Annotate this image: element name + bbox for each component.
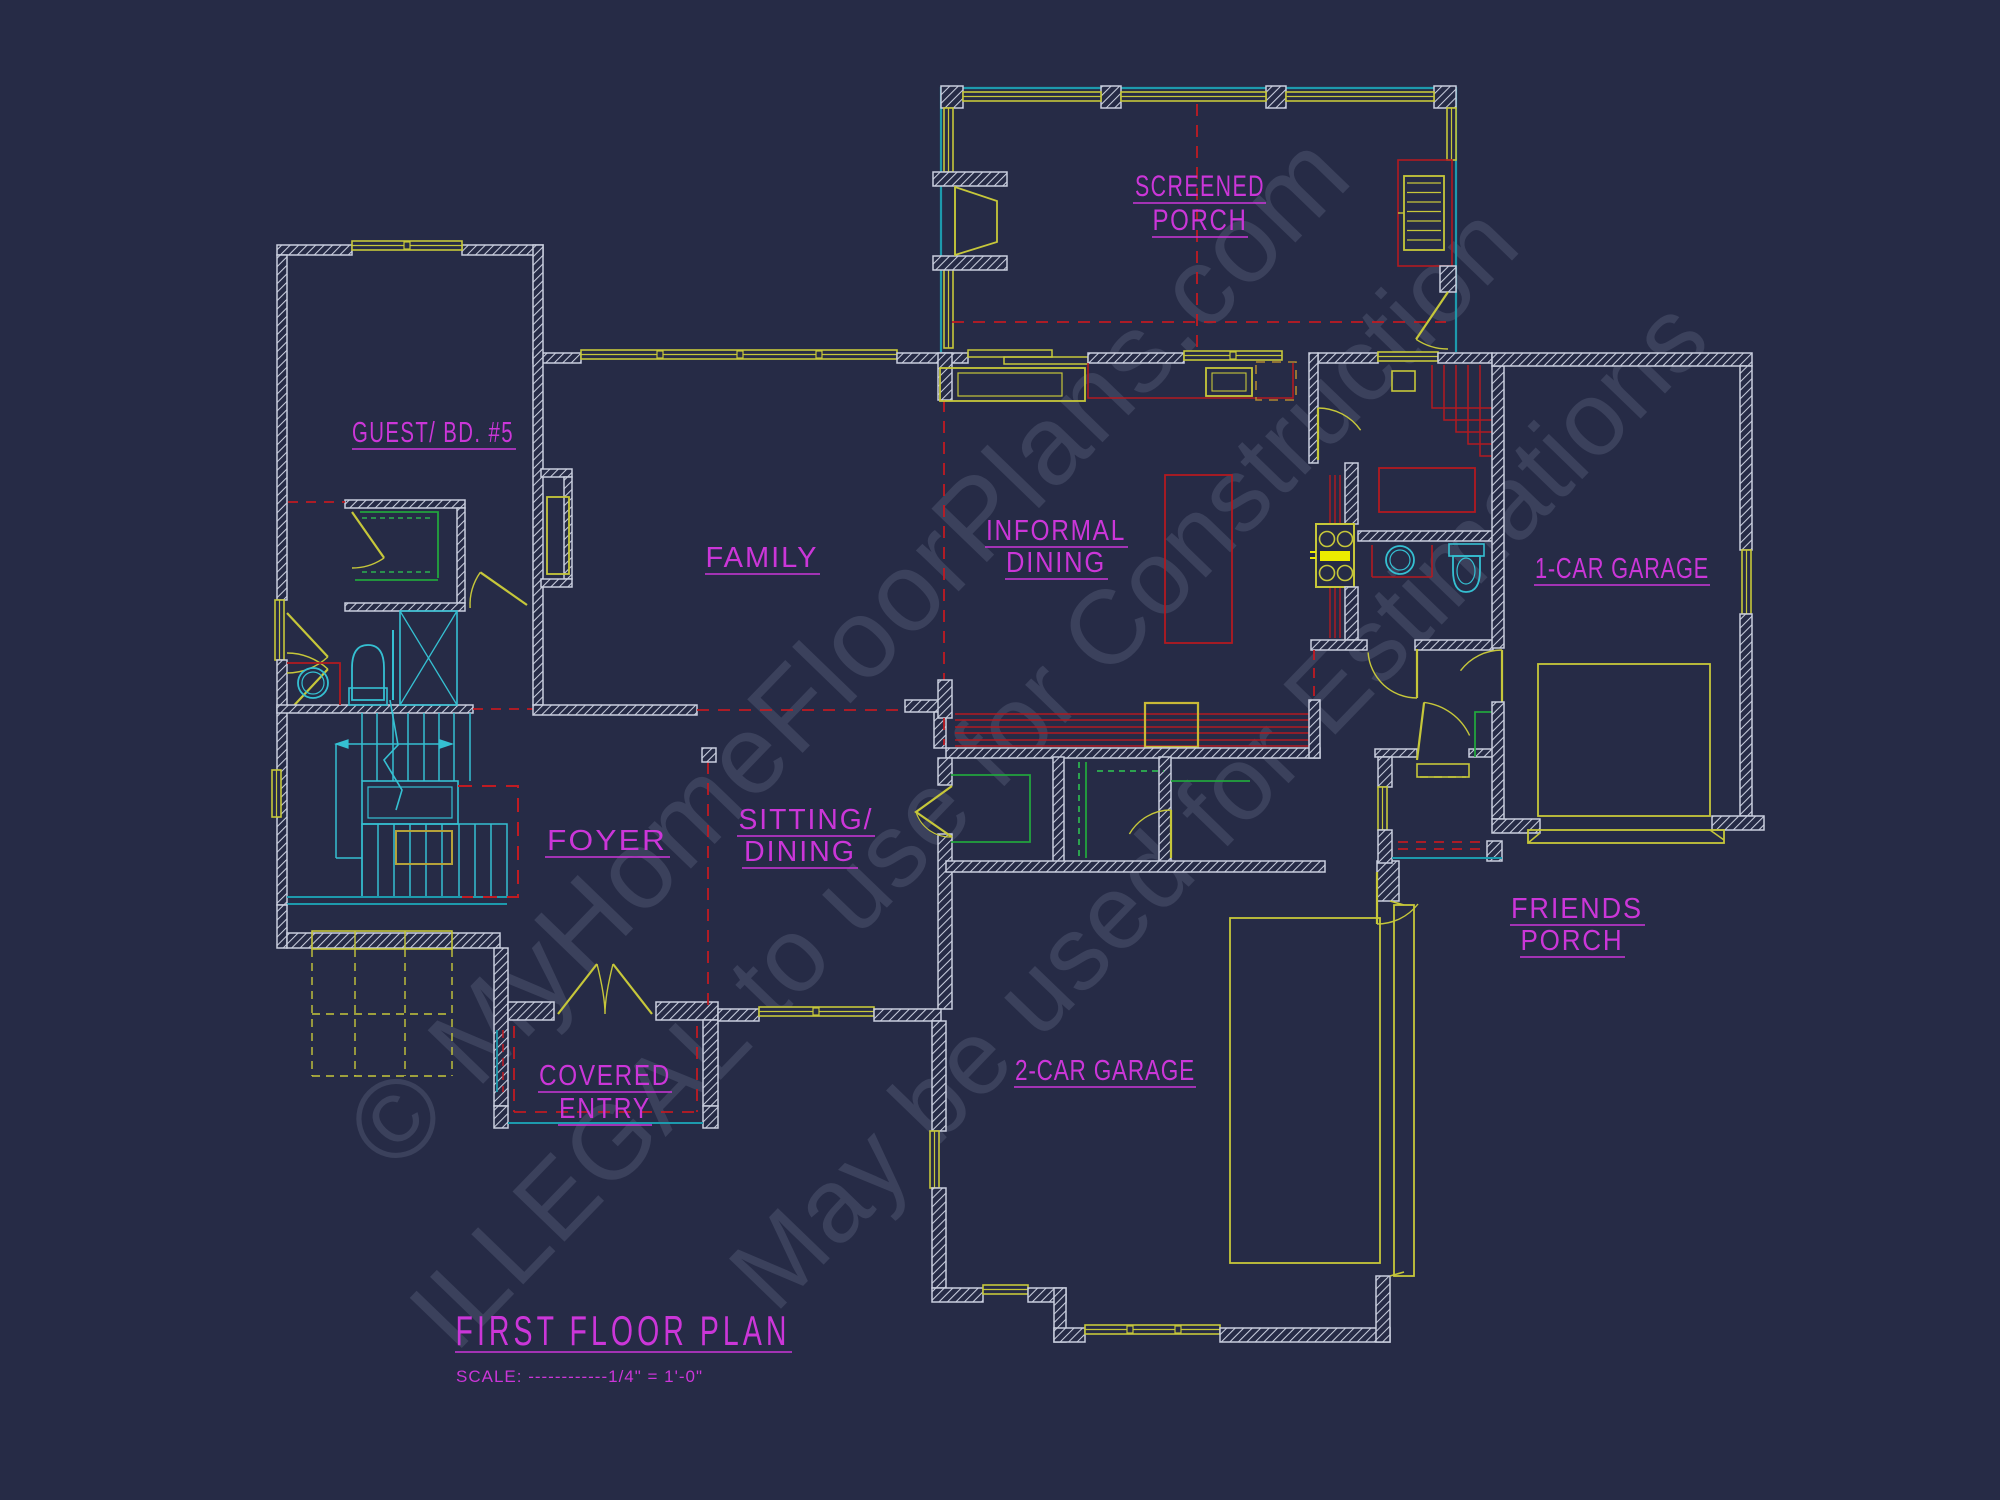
svg-text:PORCH: PORCH: [1521, 925, 1624, 957]
svg-text:SCALE: ------------1/4" = 1'-0: SCALE: ------------1/4" = 1'-0": [456, 1367, 703, 1386]
svg-text:SCREENED: SCREENED: [1135, 170, 1265, 203]
svg-text:FIRST FLOOR PLAN: FIRST FLOOR PLAN: [456, 1307, 791, 1354]
svg-text:DINING: DINING: [1006, 547, 1106, 579]
svg-text:FOYER: FOYER: [547, 825, 667, 857]
svg-text:COVERED: COVERED: [539, 1060, 671, 1092]
svg-text:INFORMAL: INFORMAL: [986, 515, 1126, 547]
svg-text:PORCH: PORCH: [1153, 204, 1248, 237]
svg-text:ENTRY: ENTRY: [559, 1093, 651, 1125]
svg-text:FAMILY: FAMILY: [706, 542, 819, 574]
svg-text:GUEST/ BD. #5: GUEST/ BD. #5: [352, 417, 514, 449]
svg-text:DINING: DINING: [744, 836, 856, 868]
svg-text:SITTING/: SITTING/: [739, 804, 874, 836]
svg-text:2-CAR GARAGE: 2-CAR GARAGE: [1015, 1055, 1195, 1087]
svg-text:FRIENDS: FRIENDS: [1511, 893, 1643, 925]
svg-text:1-CAR GARAGE: 1-CAR GARAGE: [1535, 553, 1709, 585]
